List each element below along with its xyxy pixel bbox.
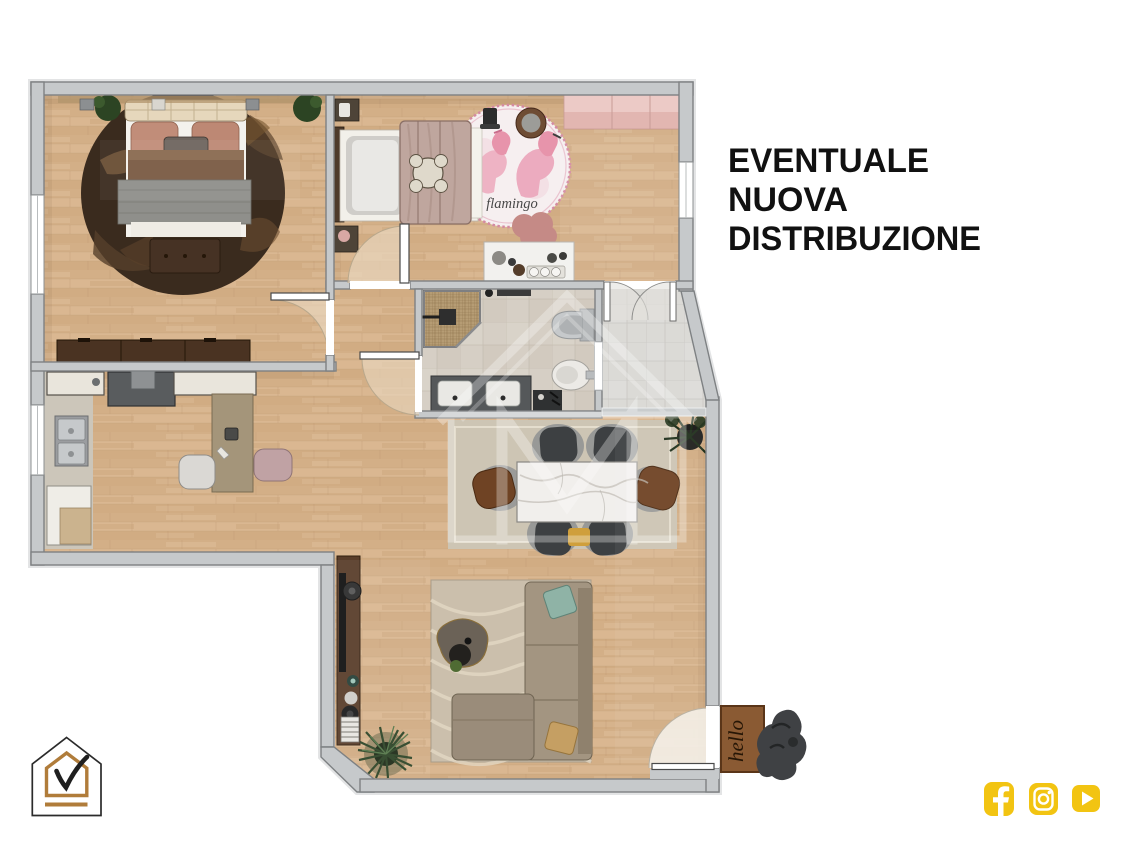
svg-text:DISTRIBUZIONE: DISTRIBUZIONE bbox=[728, 220, 981, 258]
svg-text:flamingo: flamingo bbox=[486, 196, 538, 212]
svg-text:EVENTUALE: EVENTUALE bbox=[728, 142, 929, 180]
svg-text:NUOVA: NUOVA bbox=[728, 181, 848, 219]
svg-text:hello: hello bbox=[724, 720, 748, 762]
